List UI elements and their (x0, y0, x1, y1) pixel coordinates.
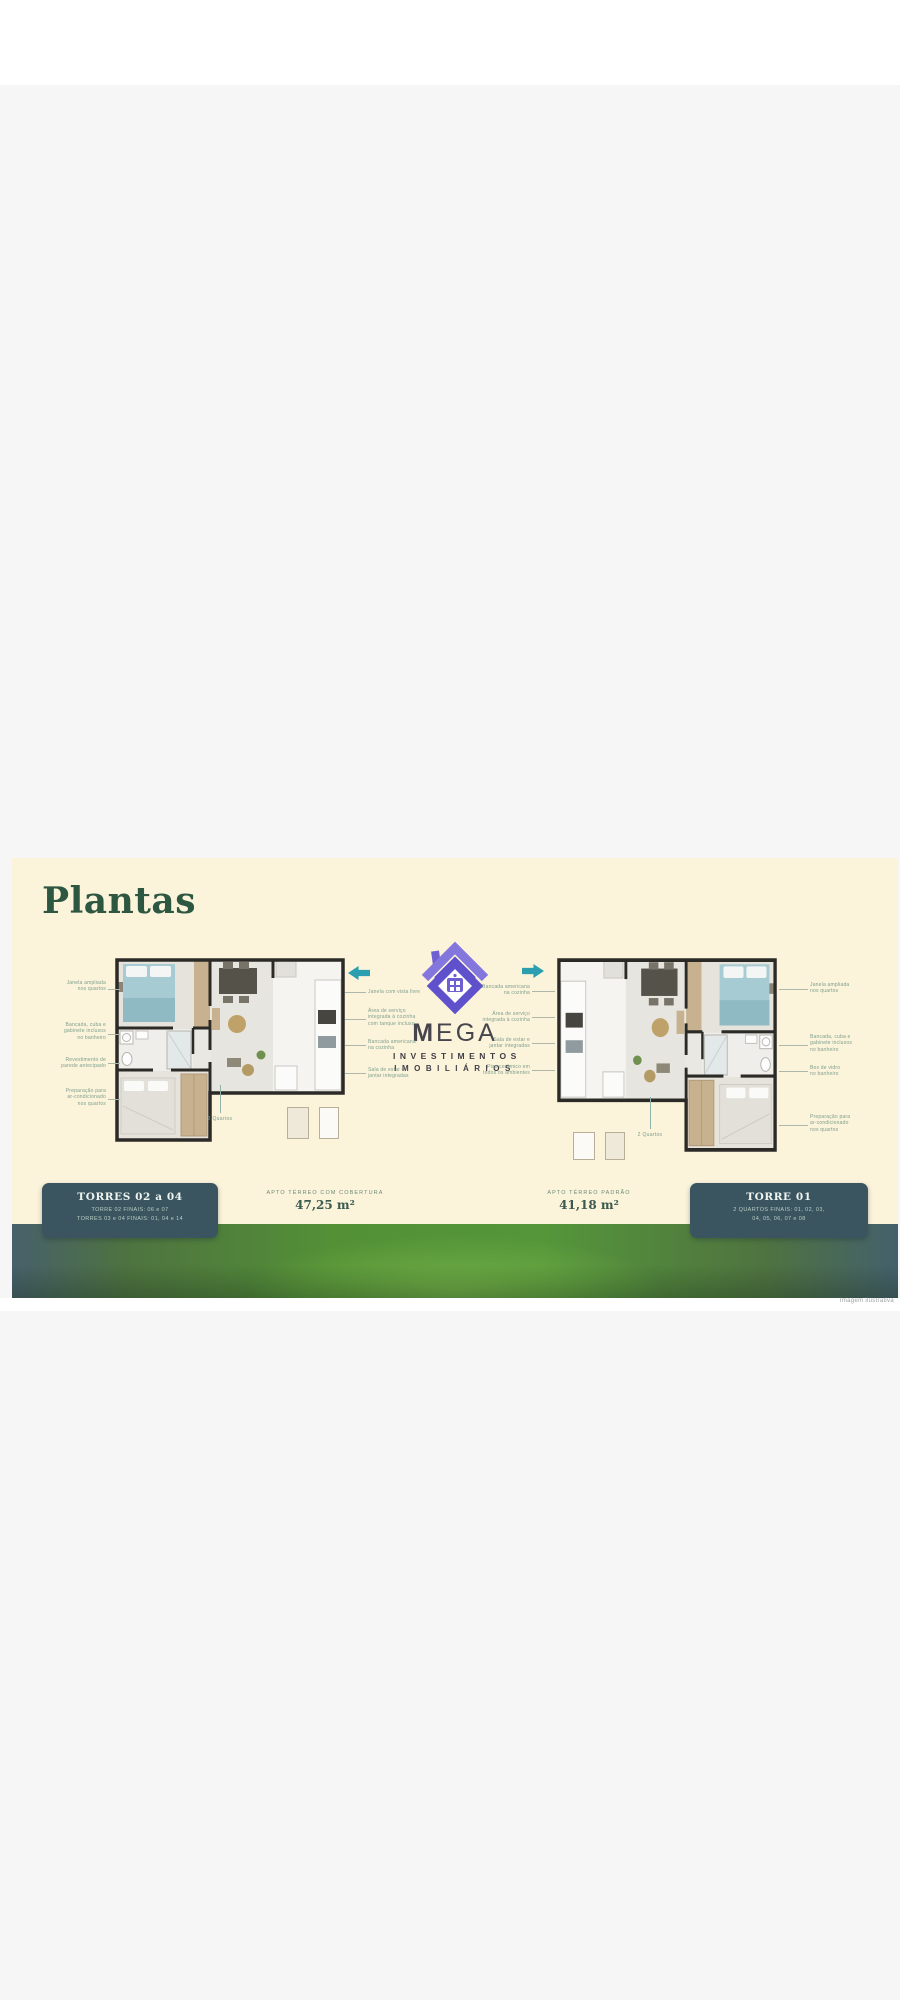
leader-line (345, 992, 366, 993)
annotation: Bancada americana na cozinha (368, 1039, 442, 1052)
page-top-margin (0, 0, 900, 85)
annotation: Janela ampliada nos quartos (40, 980, 106, 993)
annotation: Bancada, cuba e gabinete inclusos no ban… (810, 1034, 884, 1053)
leader-line (220, 1085, 221, 1113)
leader-line (108, 1063, 120, 1064)
image-credit: Imagem ilustrativa (806, 1298, 894, 1304)
flyer-canvas: Plantas MEGA INVESTIMENTOS IMOBILIÁRIOS … (12, 858, 898, 1298)
house-logo-icon (417, 938, 493, 1014)
leader-line (345, 1073, 366, 1074)
floor-plan-right (557, 958, 777, 1152)
arrow-left-icon (348, 966, 370, 980)
tower-box-details: TORRE 02 FINAIS: 06 e 07 TORRES 03 e 04 … (42, 1206, 218, 1223)
page-title: Plantas (42, 880, 196, 922)
annotation: Box de vidro no banheiro (810, 1065, 884, 1078)
furniture-options-icons (287, 1107, 339, 1139)
brand-logo: MEGA INVESTIMENTOS IMOBILIÁRIOS (393, 938, 517, 1073)
plan-caption-area: 41,18 m² (504, 1198, 674, 1212)
leader-line (532, 1070, 555, 1071)
annotation: Preparação para ar-condicionado nos quar… (810, 1114, 884, 1133)
leader-line (779, 1071, 808, 1072)
leader-line (779, 1045, 808, 1046)
plan-caption-label: APTO TÉRREO COM COBERTURA (240, 1190, 410, 1196)
leader-line (345, 1045, 366, 1046)
annotation: Preparação para ar-condicionado nos quar… (40, 1088, 106, 1107)
leader-line (345, 1019, 366, 1020)
tower-box-title: TORRES 02 a 04 (42, 1191, 218, 1203)
annotation: Sala de estar e jantar integradas (464, 1037, 530, 1050)
annotation: Bancada americana na cozinha (464, 984, 530, 997)
annotation: Janela com vista livre (368, 989, 442, 995)
leader-line (779, 1125, 808, 1126)
plan-footnote: 2 Quartos (180, 1116, 260, 1122)
annotation: Área de serviço integrada à cozinha com … (368, 1008, 442, 1027)
annotation: Bancada, cuba e gabinete inclusos no ban… (40, 1022, 106, 1041)
leader-line (108, 1099, 120, 1100)
leader-line (779, 989, 808, 990)
annotation: Janela ampliada nos quartos (810, 982, 884, 995)
leader-line (532, 1043, 555, 1044)
leader-line (650, 1097, 651, 1129)
annotation: Revestimento de parede antecipado (40, 1057, 106, 1070)
tower-info-box-right: TORRE 01 2 QUARTOS FINAIS: 01, 02, 03, 0… (690, 1183, 868, 1238)
leader-line (108, 989, 120, 990)
page-bottom-margin (0, 1298, 900, 1311)
plan-caption-label: APTO TÉRREO PADRÃO (504, 1190, 674, 1196)
annotation: Piso cerâmico em todos os ambientes (464, 1064, 530, 1077)
tower-box-title: TORRE 01 (690, 1191, 868, 1203)
plan-caption-right: APTO TÉRREO PADRÃO 41,18 m² (504, 1190, 674, 1212)
tower-box-details: 2 QUARTOS FINAIS: 01, 02, 03, 04, 05, 06… (690, 1206, 868, 1223)
tower-info-box-left: TORRES 02 a 04 TORRE 02 FINAIS: 06 e 07 … (42, 1183, 218, 1238)
annotation: Sala de estar e jantar integradas (368, 1067, 442, 1080)
leader-line (532, 1017, 555, 1018)
logo-line-investimentos: INVESTIMENTOS (393, 1051, 517, 1061)
leader-line (108, 1034, 120, 1035)
annotation: Área de serviço integrada à cozinha (464, 1011, 530, 1024)
furniture-options-icons (573, 1132, 625, 1160)
leader-line (532, 991, 555, 992)
plan-caption-left: APTO TÉRREO COM COBERTURA 47,25 m² (240, 1190, 410, 1212)
plan-caption-area: 47,25 m² (240, 1198, 410, 1212)
arrow-right-icon (522, 964, 544, 978)
